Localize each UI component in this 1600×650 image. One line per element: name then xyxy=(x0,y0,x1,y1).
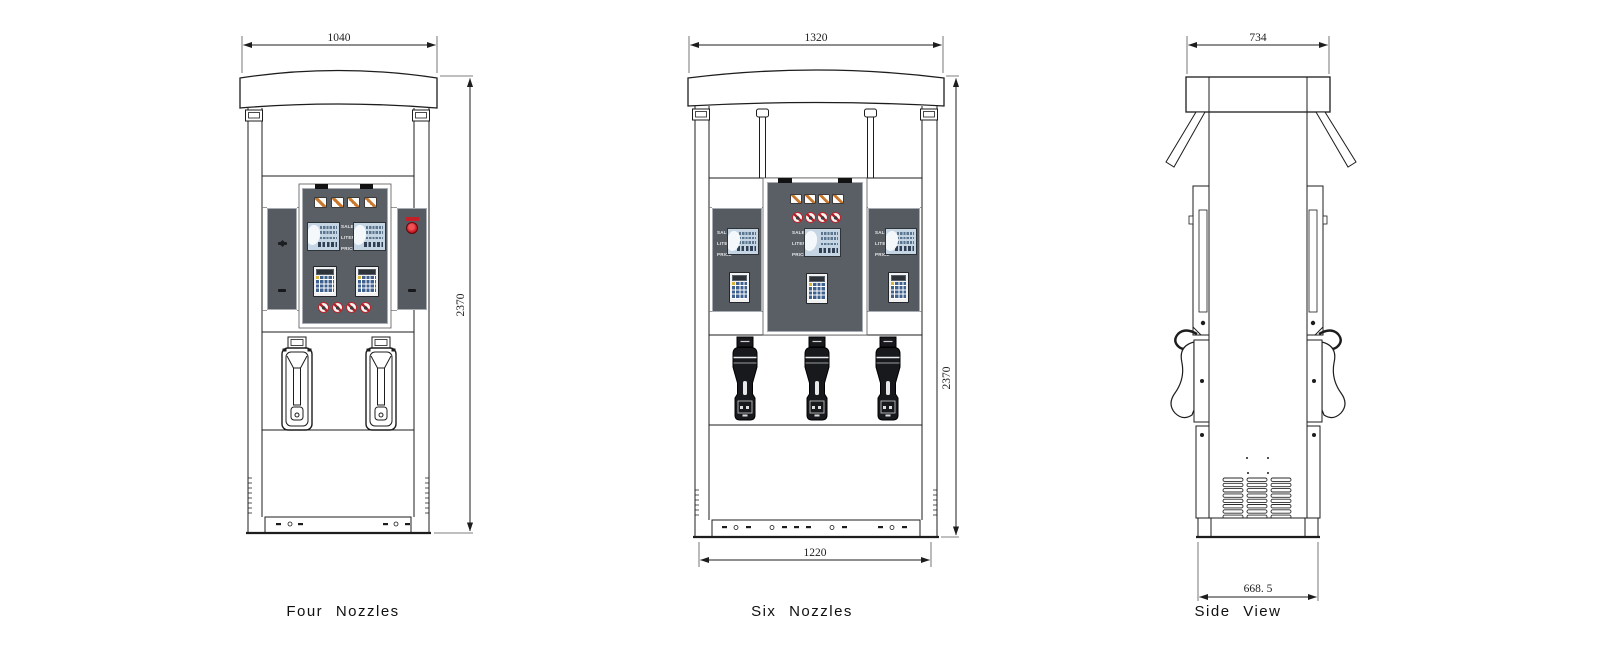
keypad-yellow-key xyxy=(809,283,812,286)
keypad-screen xyxy=(316,269,334,275)
caption-six-nozzles: Six Nozzles xyxy=(712,603,892,620)
hose-drape-left xyxy=(1171,342,1194,418)
price-label: PRICE xyxy=(341,246,352,251)
engine-off-icon xyxy=(360,302,371,313)
lcd-glare xyxy=(804,230,819,252)
keypad-screen xyxy=(358,269,376,275)
lcd-row-labels: SALE LITER PRICE xyxy=(341,224,352,251)
dim-base-six: 1220 xyxy=(804,547,827,559)
keypad-screen xyxy=(732,275,747,281)
base-skirt-six xyxy=(712,520,920,537)
lower-door-right xyxy=(1307,426,1320,518)
keypad-keys xyxy=(358,276,376,293)
preset-keypad xyxy=(729,272,750,303)
four-right-access-panel xyxy=(397,208,427,310)
hose-pipe xyxy=(757,109,769,117)
no-smoking-icon xyxy=(792,212,803,223)
panel-tab xyxy=(838,178,852,183)
prohibition-icon-row xyxy=(792,212,841,223)
upper-door-right xyxy=(1307,186,1323,335)
sale-liter-price-lcd xyxy=(353,222,386,251)
sale-label: SALE xyxy=(717,230,727,235)
dim-width-four: 1040 xyxy=(328,32,351,44)
payment-icon-row xyxy=(314,197,377,208)
fuel-nozzle xyxy=(733,337,757,420)
no-phone-icon xyxy=(346,302,357,313)
upper-door-left xyxy=(1193,186,1209,335)
panel-tab xyxy=(360,184,373,189)
card-icon xyxy=(790,194,802,204)
view-side: 734 668. 5 xyxy=(1166,32,1356,601)
lcd-row-labels: SALE LITER PRICE xyxy=(875,230,885,257)
preset-keypad xyxy=(355,266,379,297)
liter-label: LITER xyxy=(875,241,885,246)
sale-label: SALE xyxy=(792,230,803,235)
payment-icon-row xyxy=(790,194,844,204)
fuel-nozzle xyxy=(876,337,900,420)
keypad-yellow-key xyxy=(891,282,894,285)
key-lock-icon xyxy=(278,239,287,248)
four-left-access-panel xyxy=(267,208,297,310)
panel-slot xyxy=(408,289,416,292)
dim-width-six: 1320 xyxy=(805,32,828,44)
keypad-yellow-key xyxy=(316,276,319,279)
card-icon xyxy=(818,194,830,204)
canopy-side xyxy=(1186,77,1330,112)
sale-label: SALE xyxy=(341,224,352,229)
fuel-nozzle xyxy=(805,337,829,420)
liter-label: LITER xyxy=(792,241,803,246)
emergency-stop-button xyxy=(406,222,418,234)
keypad-screen xyxy=(809,276,825,282)
sale-liter-price-lcd xyxy=(307,222,340,251)
keypad-screen xyxy=(891,275,906,281)
preset-keypad xyxy=(313,266,337,297)
nozzle-holder xyxy=(282,337,312,430)
six-left-display-panel: SALE LITER PRICE xyxy=(712,208,762,312)
no-open-flame-icon xyxy=(332,302,343,313)
card-icon xyxy=(347,197,360,208)
lcd-row-labels: SALE LITER PRICE xyxy=(792,230,803,257)
six-right-display-panel: SALE LITER PRICE xyxy=(868,208,920,312)
card-icon xyxy=(804,194,816,204)
sale-liter-price-lcd xyxy=(727,228,759,255)
sale-liter-price-lcd xyxy=(885,228,917,255)
price-label: PRICE xyxy=(717,252,727,257)
keypad-keys xyxy=(891,282,906,299)
prohibition-icon-row xyxy=(318,302,371,313)
no-phone-icon xyxy=(817,212,828,223)
no-open-flame-icon xyxy=(805,212,816,223)
hose-drape-right xyxy=(1322,342,1345,418)
liter-label: LITER xyxy=(717,241,727,246)
card-icon xyxy=(331,197,344,208)
dim-height-four: 2370 xyxy=(455,293,467,316)
keypad-keys xyxy=(316,276,334,293)
lower-door-left xyxy=(1196,426,1209,518)
keypad-keys xyxy=(809,283,825,300)
price-label: PRICE xyxy=(875,252,885,257)
lcd-row-labels: SALE LITER PRICE xyxy=(717,230,727,257)
preset-keypad xyxy=(806,273,828,304)
boom-right xyxy=(1316,112,1356,167)
base-side xyxy=(1198,518,1318,537)
sale-liter-price-lcd xyxy=(804,228,841,257)
dim-width-side: 734 xyxy=(1249,32,1267,44)
dim-height-six: 2370 xyxy=(941,366,953,389)
canopy-six xyxy=(688,70,944,106)
nozzle-holder xyxy=(366,337,396,430)
four-display-panel: SALE LITER PRICE xyxy=(302,188,388,324)
six-center-display-panel: SALE LITER PRICE xyxy=(767,182,863,332)
keypad-yellow-key xyxy=(732,282,735,285)
boom-left xyxy=(1166,112,1205,167)
dim-base-side: 668. 5 xyxy=(1244,583,1273,595)
liter-label: LITER xyxy=(341,235,352,240)
caption-four-nozzles: Four Nozzles xyxy=(253,603,433,620)
technical-drawing-canvas: 1040 2370 1320 xyxy=(0,0,1600,650)
estop-label xyxy=(406,217,419,221)
panel-slot xyxy=(278,289,286,292)
keypad-yellow-key xyxy=(358,276,361,279)
engine-off-icon xyxy=(830,212,841,223)
card-icon xyxy=(364,197,377,208)
preset-keypad xyxy=(888,272,909,303)
column-side xyxy=(1209,112,1307,518)
sale-label: SALE xyxy=(875,230,885,235)
no-smoking-icon xyxy=(318,302,329,313)
caption-side-view: Side View xyxy=(1148,603,1328,620)
card-icon xyxy=(314,197,327,208)
card-icon xyxy=(832,194,844,204)
canopy-four xyxy=(240,71,437,109)
hose-pipe xyxy=(865,109,877,117)
base-skirt-four xyxy=(265,517,411,533)
keypad-keys xyxy=(732,282,747,299)
panel-tab xyxy=(778,178,792,183)
price-label: PRICE xyxy=(792,252,803,257)
panel-tab xyxy=(315,184,328,189)
